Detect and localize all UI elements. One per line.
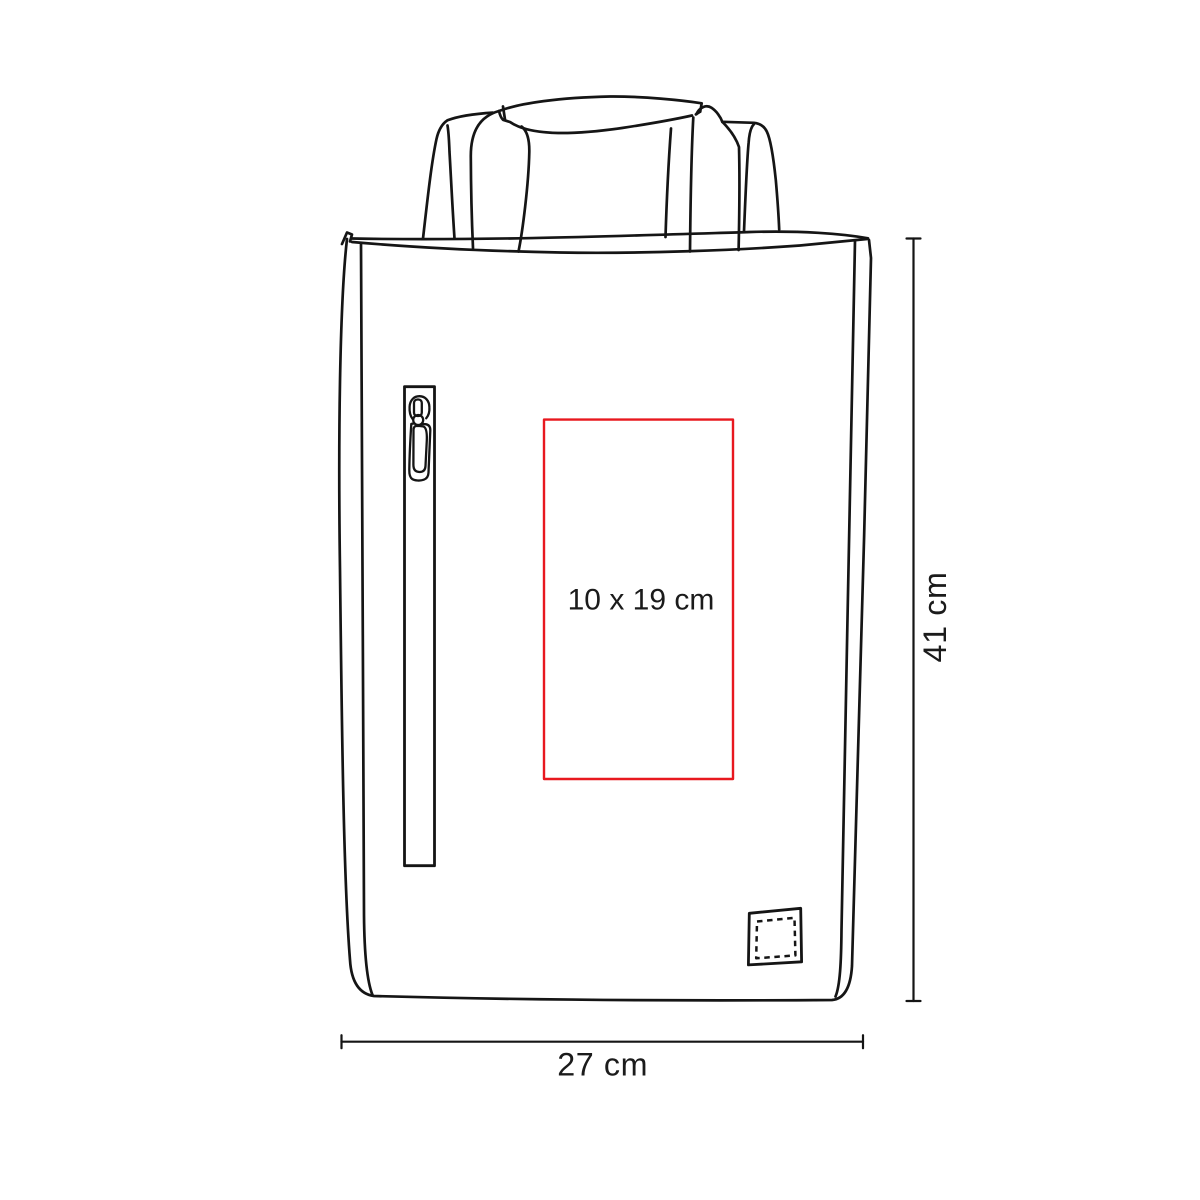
svg-text:27 cm: 27 cm: [557, 1046, 648, 1082]
svg-text:41 cm: 41 cm: [917, 572, 953, 663]
svg-text:10 x 19 cm: 10 x 19 cm: [568, 584, 715, 617]
